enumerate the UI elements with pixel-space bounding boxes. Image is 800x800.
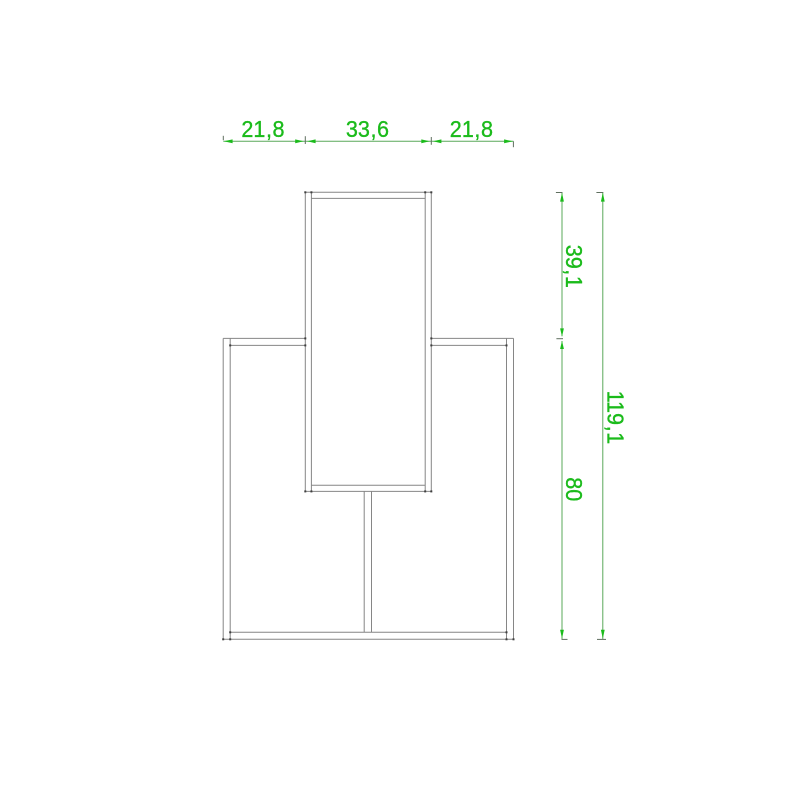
svg-text:39,1: 39,1 [561, 245, 587, 288]
svg-text:21,8: 21,8 [450, 116, 493, 142]
svg-text:119,1: 119,1 [602, 391, 628, 445]
svg-text:80: 80 [561, 477, 587, 501]
svg-text:21,8: 21,8 [241, 116, 284, 142]
svg-text:33,6: 33,6 [346, 116, 389, 142]
